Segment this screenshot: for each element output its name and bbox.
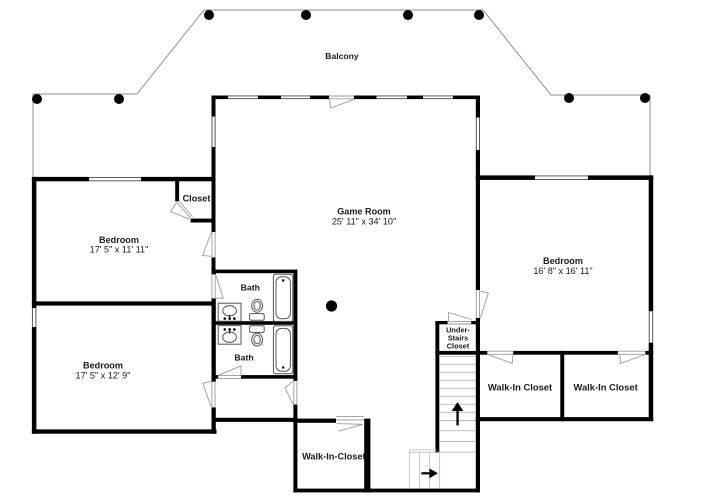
svg-text:Walk-In Closet: Walk-In Closet: [573, 381, 637, 392]
svg-text:Bedroom: Bedroom: [83, 361, 123, 371]
svg-text:Balcony: Balcony: [325, 51, 359, 61]
svg-text:Closet: Closet: [183, 193, 211, 203]
svg-text:17' 5" x 12' 9": 17' 5" x 12' 9": [76, 370, 131, 380]
svg-text:Closet: Closet: [447, 341, 470, 350]
svg-text:Bath: Bath: [234, 353, 253, 363]
svg-text:Bedroom: Bedroom: [543, 256, 583, 266]
svg-text:Bath: Bath: [241, 283, 260, 293]
svg-text:25' 11" x 34' 10": 25' 11" x 34' 10": [332, 217, 396, 227]
svg-text:Game Room: Game Room: [337, 207, 391, 217]
svg-text:17' 5" x 11' 11": 17' 5" x 11' 11": [90, 244, 149, 254]
svg-text:Walk-In Closet: Walk-In Closet: [488, 381, 552, 392]
svg-text:Walk-In-Closet: Walk-In-Closet: [302, 451, 365, 461]
svg-text:16' 8" x 16' 11": 16' 8" x 16' 11": [533, 266, 592, 276]
